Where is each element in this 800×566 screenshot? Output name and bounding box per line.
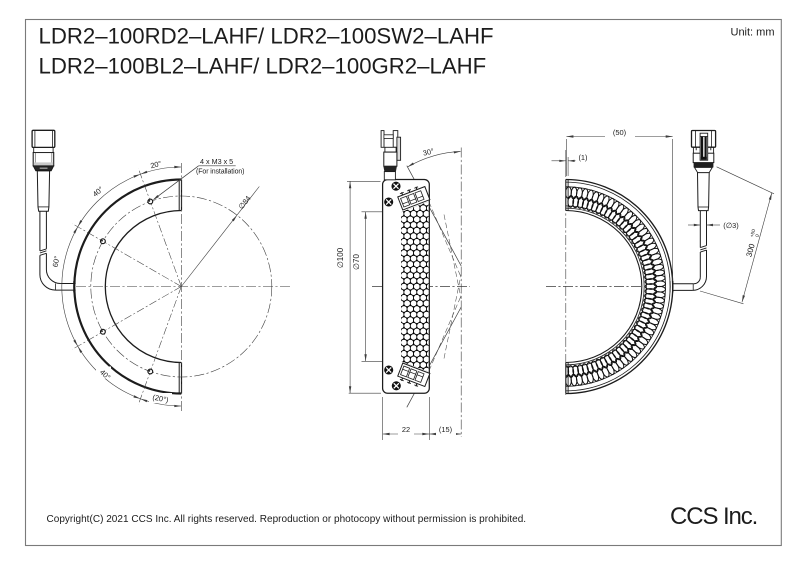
svg-text:∅100: ∅100 — [336, 247, 345, 268]
svg-text:(∅3): (∅3) — [723, 221, 738, 230]
svg-text:CCS Inc.: CCS Inc. — [670, 503, 757, 530]
svg-text:22: 22 — [402, 425, 410, 434]
svg-text:LDR2–100BL2–LAHF/ LDR2–100GR2–: LDR2–100BL2–LAHF/ LDR2–100GR2–LAHF — [39, 54, 487, 79]
svg-text:(1): (1) — [578, 153, 587, 162]
svg-text:Copyright(C) 2021 CCS Inc. All: Copyright(C) 2021 CCS Inc. All rights re… — [47, 514, 527, 525]
svg-text:(15): (15) — [439, 425, 452, 434]
svg-text:60°: 60° — [51, 255, 62, 268]
svg-text:4 x M3 x 5: 4 x M3 x 5 — [200, 157, 233, 166]
svg-text:LDR2–100RD2–LAHF/ LDR2–100SW2–: LDR2–100RD2–LAHF/ LDR2–100SW2–LAHF — [39, 24, 494, 49]
svg-text:(50): (50) — [613, 128, 627, 137]
svg-text:Unit: mm: Unit: mm — [731, 27, 775, 39]
svg-text:(For installation): (For installation) — [196, 168, 244, 175]
svg-text:∅70: ∅70 — [352, 254, 361, 270]
